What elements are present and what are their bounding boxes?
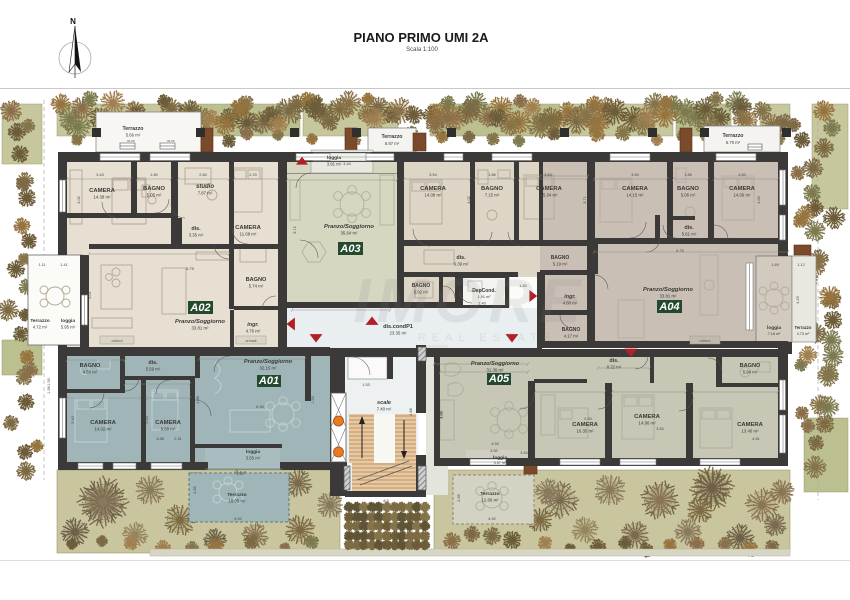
svg-text:Terrazzo: Terrazzo <box>382 134 403 140</box>
svg-text:Pranzo/Soggiorno: Pranzo/Soggiorno <box>471 361 520 367</box>
svg-text:dis.: dis. <box>191 226 201 232</box>
svg-text:1.12: 1.12 <box>797 263 804 267</box>
svg-text:Scala 1:100: Scala 1:100 <box>406 47 438 53</box>
svg-text:4.54: 4.54 <box>145 416 149 423</box>
svg-text:ingr.: ingr. <box>247 322 259 328</box>
svg-text:4.88: 4.88 <box>196 396 200 403</box>
svg-text:5.70 m²: 5.70 m² <box>726 140 741 145</box>
svg-text:CAMERA: CAMERA <box>235 225 262 231</box>
svg-text:5.19 m²: 5.19 m² <box>553 262 568 267</box>
svg-text:Terrazzo: Terrazzo <box>480 491 499 497</box>
svg-text:A04: A04 <box>658 301 679 313</box>
svg-text:2.65: 2.65 <box>457 494 461 501</box>
svg-text:5.01: 5.01 <box>88 291 92 298</box>
svg-text:7.15 m²: 7.15 m² <box>485 193 500 198</box>
svg-text:REAL ESTATE: REAL ESTATE <box>418 332 557 344</box>
svg-text:3.40: 3.40 <box>71 416 75 423</box>
svg-text:3.50: 3.50 <box>490 449 497 453</box>
svg-text:14.15 m²: 14.15 m² <box>627 193 645 198</box>
svg-text:BAGNO: BAGNO <box>143 186 165 192</box>
svg-text:06 08: 06 08 <box>167 139 175 143</box>
svg-text:1.11: 1.11 <box>38 263 45 267</box>
svg-text:CAMERA: CAMERA <box>634 414 661 420</box>
svg-text:1.80: 1.80 <box>150 173 157 177</box>
svg-text:1.53: 1.53 <box>311 396 315 403</box>
svg-text:1.50: 1.50 <box>47 378 51 385</box>
svg-text:4.92: 4.92 <box>234 517 241 521</box>
svg-text:32.15 m²: 32.15 m² <box>260 366 278 371</box>
svg-text:Pranzo/Soggiorno: Pranzo/Soggiorno <box>324 224 374 230</box>
svg-text:loggia: loggia <box>767 325 781 331</box>
svg-text:Terrazzo: Terrazzo <box>30 318 49 324</box>
svg-text:CAMERA: CAMERA <box>420 186 447 192</box>
svg-text:CAMERA: CAMERA <box>536 186 563 192</box>
svg-text:5.05 m²: 5.05 m² <box>147 193 162 198</box>
svg-text:14.06 m²: 14.06 m² <box>734 193 752 198</box>
svg-text:cottura: cottura <box>700 339 711 343</box>
svg-text:Pranzo/Soggiorno: Pranzo/Soggiorno <box>643 287 693 293</box>
svg-text:CAMERA: CAMERA <box>572 422 599 428</box>
svg-text:6.75: 6.75 <box>186 267 193 271</box>
svg-text:3.88: 3.88 <box>156 437 163 441</box>
svg-text:4.00: 4.00 <box>757 196 761 203</box>
svg-text:1.41: 1.41 <box>60 263 67 267</box>
svg-text:Pranzo/Soggiorno: Pranzo/Soggiorno <box>175 319 225 325</box>
svg-text:3.35 m²: 3.35 m² <box>189 233 204 238</box>
svg-text:N: N <box>70 17 76 26</box>
svg-text:dis.: dis. <box>456 255 466 261</box>
svg-text:1.86: 1.86 <box>684 173 691 177</box>
svg-text:3.91 m²: 3.91 m² <box>327 162 342 167</box>
svg-text:5.94 m²: 5.94 m² <box>743 370 758 375</box>
svg-text:6.97 m²: 6.97 m² <box>385 141 400 146</box>
svg-text:CAMERA: CAMERA <box>89 188 116 194</box>
svg-text:BAGNO: BAGNO <box>80 363 101 369</box>
svg-text:dis.: dis. <box>609 358 619 364</box>
svg-text:9.58 m²: 9.58 m² <box>161 427 176 432</box>
svg-text:1.96: 1.96 <box>47 386 51 393</box>
svg-text:14.38 m²: 14.38 m² <box>94 195 112 200</box>
svg-text:5.66 m²: 5.66 m² <box>126 133 141 138</box>
svg-text:dis.: dis. <box>148 360 158 366</box>
svg-text:33.81 m²: 33.81 m² <box>192 326 210 331</box>
svg-text:Terrazzo: Terrazzo <box>123 126 144 132</box>
svg-text:4.02: 4.02 <box>467 196 471 203</box>
svg-text:BAGNO: BAGNO <box>740 363 761 369</box>
svg-text:3.50: 3.50 <box>656 427 663 431</box>
svg-text:06 08: 06 08 <box>127 139 135 143</box>
svg-text:4.73 m²: 4.73 m² <box>797 332 811 336</box>
svg-text:3.54: 3.54 <box>429 173 436 177</box>
svg-text:14.02 m²: 14.02 m² <box>95 427 113 432</box>
svg-text:5.06 m²: 5.06 m² <box>681 193 696 198</box>
svg-text:studio: studio <box>196 184 214 190</box>
svg-text:4.88: 4.88 <box>409 408 413 415</box>
svg-text:11.68 m²: 11.68 m² <box>240 232 257 237</box>
svg-text:armadi: armadi <box>246 339 257 343</box>
svg-text:A03: A03 <box>339 243 360 255</box>
svg-text:loggia: loggia <box>61 318 75 324</box>
svg-text:7.40 m²: 7.40 m² <box>377 407 392 412</box>
svg-text:10.35 m²: 10.35 m² <box>577 429 595 434</box>
svg-text:Terrazzo: Terrazzo <box>723 133 744 139</box>
svg-text:1.69: 1.69 <box>771 263 778 267</box>
svg-text:35.64 m²: 35.64 m² <box>341 231 359 236</box>
svg-text:IMORE: IMORE <box>353 267 586 336</box>
svg-text:4.94: 4.94 <box>491 442 498 446</box>
svg-text:A05: A05 <box>488 373 510 385</box>
svg-text:3.43: 3.43 <box>96 173 103 177</box>
svg-text:cottura: cottura <box>112 339 123 343</box>
svg-text:scale: scale <box>377 400 391 406</box>
svg-text:4.72 m²: 4.72 m² <box>33 325 48 330</box>
svg-text:13.40 m²: 13.40 m² <box>742 429 760 434</box>
svg-text:4.81: 4.81 <box>752 437 759 441</box>
svg-text:CAMERA: CAMERA <box>729 186 756 192</box>
svg-text:BAGNO: BAGNO <box>677 186 699 192</box>
svg-text:3.50: 3.50 <box>236 472 243 476</box>
svg-text:4.02: 4.02 <box>77 196 81 203</box>
svg-text:3.71: 3.71 <box>583 196 587 203</box>
svg-text:8.8: 8.8 <box>383 499 388 503</box>
svg-text:A02: A02 <box>189 302 210 314</box>
svg-text:CAMERA: CAMERA <box>737 422 764 428</box>
svg-text:loggia: loggia <box>246 449 260 455</box>
svg-text:2.50: 2.50 <box>584 417 591 421</box>
svg-text:7.16 m²: 7.16 m² <box>768 332 782 336</box>
svg-text:4.29: 4.29 <box>796 296 800 303</box>
svg-text:CAMERA: CAMERA <box>622 186 649 192</box>
svg-text:3.72: 3.72 <box>293 226 297 233</box>
svg-text:3.72: 3.72 <box>441 126 445 133</box>
svg-text:3.44: 3.44 <box>343 162 350 166</box>
svg-text:6.75: 6.75 <box>676 249 683 253</box>
svg-text:3.54: 3.54 <box>631 173 638 177</box>
svg-text:7.87 m²: 7.87 m² <box>198 191 213 196</box>
svg-text:loggia: loggia <box>327 155 341 161</box>
svg-text:3.50: 3.50 <box>738 173 745 177</box>
svg-text:CAMERA: CAMERA <box>90 420 117 426</box>
svg-text:3.57 m²: 3.57 m² <box>494 461 508 465</box>
svg-text:Terrazzo: Terrazzo <box>795 325 812 330</box>
svg-text:14.08 m²: 14.08 m² <box>425 193 443 198</box>
svg-text:BAGNO: BAGNO <box>481 186 503 192</box>
svg-text:BAGNO: BAGNO <box>551 255 570 261</box>
svg-text:1.86: 1.86 <box>488 173 495 177</box>
svg-text:6.39: 6.39 <box>256 405 263 409</box>
svg-text:3.55 m²: 3.55 m² <box>246 456 261 461</box>
svg-text:5.74 m²: 5.74 m² <box>249 284 264 289</box>
svg-text:4.50 m²: 4.50 m² <box>83 370 98 375</box>
svg-text:5.61 m²: 5.61 m² <box>682 232 697 237</box>
svg-text:4.92: 4.92 <box>488 517 495 521</box>
svg-text:5.59 m²: 5.59 m² <box>146 367 161 372</box>
svg-text:2.29: 2.29 <box>249 173 256 177</box>
svg-text:4.76 m²: 4.76 m² <box>246 329 261 334</box>
svg-text:PIANO PRIMO UMI 2A: PIANO PRIMO UMI 2A <box>353 30 489 45</box>
svg-text:2.31: 2.31 <box>174 437 181 441</box>
svg-text:1.53: 1.53 <box>362 383 369 387</box>
svg-text:Pranzo/Soggiorno: Pranzo/Soggiorno <box>244 359 293 365</box>
svg-text:31.36 m²: 31.36 m² <box>487 368 505 373</box>
svg-text:18.05 m²: 18.05 m² <box>229 499 247 504</box>
svg-text:BAGNO: BAGNO <box>246 277 267 283</box>
svg-text:6.39 m²: 6.39 m² <box>454 262 469 267</box>
svg-text:Terrazzo: Terrazzo <box>227 492 246 498</box>
svg-text:14.90 m²: 14.90 m² <box>639 421 657 426</box>
svg-text:3.50: 3.50 <box>520 451 527 455</box>
svg-text:A01: A01 <box>258 375 279 387</box>
svg-text:CAMERA: CAMERA <box>155 420 182 426</box>
svg-text:33.81 m²: 33.81 m² <box>660 294 678 299</box>
svg-text:1.04: 1.04 <box>440 411 444 418</box>
svg-text:8.22 m²: 8.22 m² <box>607 365 622 370</box>
svg-text:2.84: 2.84 <box>199 173 206 177</box>
svg-text:5.95 m²: 5.95 m² <box>61 325 76 330</box>
svg-text:3.63: 3.63 <box>544 173 551 177</box>
svg-text:12.66 m²: 12.66 m² <box>482 498 500 503</box>
svg-text:dis.: dis. <box>684 225 694 231</box>
svg-text:2.65: 2.65 <box>193 486 197 493</box>
svg-text:15.34 m²: 15.34 m² <box>541 193 559 198</box>
